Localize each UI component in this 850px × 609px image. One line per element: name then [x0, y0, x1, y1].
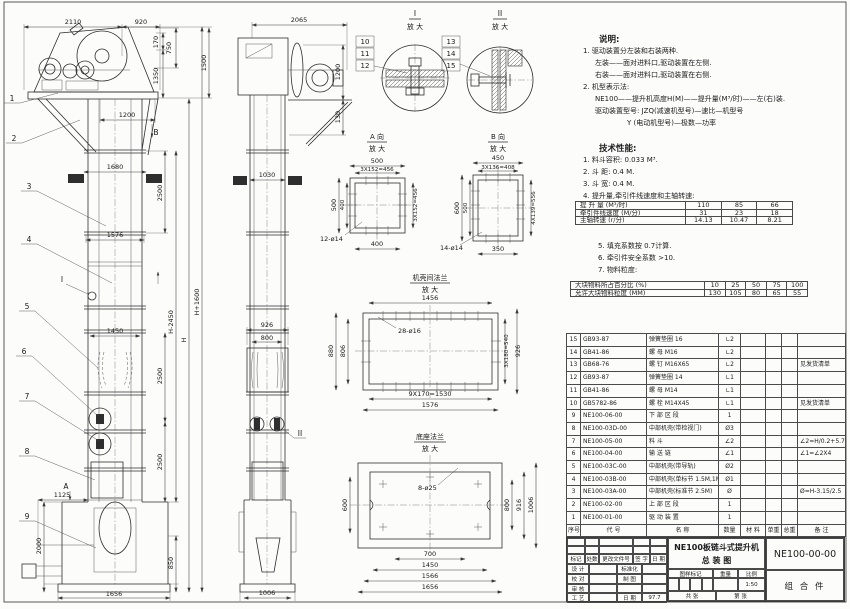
bom-qty: ∟2 — [719, 334, 741, 347]
dim-fb-1566: 1566 — [422, 572, 439, 580]
bom-code: GB93-87 — [581, 334, 647, 347]
tech-block-2: 5. 填充系数按 0.7计算. 6. 牵引件安全系数 >10. 7. 物料粒度: — [598, 243, 848, 279]
speed-value: 10.47 — [721, 217, 757, 225]
bom-no: 11 — [567, 384, 581, 397]
bom-material — [741, 346, 766, 359]
dim-1125: 1125 — [54, 491, 71, 499]
drawing-sheet: 2110 920 170 750 1350 1500 1200 B 1680 2… — [0, 0, 850, 609]
balloon-2: 2 — [12, 134, 17, 143]
detail-i-location — [88, 292, 96, 300]
bom-row: 13 GB68-76 螺 钉 M16X65 ∟2 见发货清单 — [567, 359, 846, 372]
bom-code: NE100-02-00 — [581, 499, 647, 512]
titleblock-date-label: 日 期 — [617, 593, 642, 603]
dim-1350: 1350 — [152, 68, 160, 85]
bom-header-code: 代 号 — [581, 524, 647, 537]
speed-value: 66 — [757, 202, 793, 210]
bom-no: 8 — [567, 422, 581, 435]
bom-row: 14 GB41-86 螺 母 M16 ∟2 — [567, 346, 846, 359]
bom-header-total-weight: 总重 — [782, 524, 798, 537]
bom-total-weight — [782, 435, 798, 448]
bom-code: GB68-76 — [581, 359, 647, 372]
bom-qty: Ø3 — [719, 422, 741, 435]
bom-unit-weight — [766, 422, 782, 435]
bom-material — [741, 384, 766, 397]
bom-remark — [798, 334, 846, 347]
speed-row-label: 牵引件线速度 (M/分) — [576, 209, 686, 217]
bom-header-row: 序号 代 号 名 称 数量 材 料 单重 总重 备 注 — [567, 524, 846, 537]
bom-code: NE100-03B-00 — [581, 473, 647, 486]
bom-total-weight — [782, 448, 798, 461]
bom-qty: ∠2 — [719, 435, 741, 448]
dim-1500: 1500 — [200, 55, 208, 72]
bom-qty: ∟1 — [719, 384, 741, 397]
bom-total-weight — [782, 511, 798, 524]
bom-name: 驱 动 装 置 — [647, 511, 719, 524]
bom-material — [741, 461, 766, 474]
dim-b-450-top: 450 — [492, 154, 504, 162]
bom-no: 15 — [567, 334, 581, 347]
bom-row: 9 NE100-06-00 下 部 区 段 1 — [567, 410, 846, 423]
bom-code: GB93-87 — [581, 372, 647, 385]
dim-fb-916: 916 — [515, 499, 523, 511]
balloon-3: 3 — [27, 182, 32, 191]
bom-code: NE100-05-00 — [581, 435, 647, 448]
dim-a-500-left: 500 — [330, 199, 338, 211]
dim-h-2450: H-2450 — [167, 310, 175, 334]
bom-material — [741, 372, 766, 385]
balloon-11: 11 — [361, 50, 370, 58]
count-label: 处数 — [585, 554, 599, 564]
dim-2000: 2000 — [35, 538, 43, 555]
bom-material — [741, 359, 766, 372]
bom-remark: 见发货清单 — [798, 359, 846, 372]
view-a-mag-label: 放 大 — [369, 144, 385, 153]
bom-row: 4 NE100-03B-00 中部机壳(单标节 1.5M,1M) Ø1 — [567, 473, 846, 486]
scale-value: 1:50 — [738, 578, 765, 591]
bom-qty: ∟1 — [719, 397, 741, 410]
drawing-title-line2: 总 装 图 — [702, 555, 732, 566]
title-block-right: NE100-00-00 组 合 件 — [765, 538, 844, 601]
drive-motor — [39, 58, 61, 80]
bom-total-weight — [782, 384, 798, 397]
detail-i-marker: I — [61, 275, 63, 284]
bom-material — [741, 499, 766, 512]
bom-unit-weight — [766, 384, 782, 397]
view-a-marker: A — [63, 482, 69, 491]
dim-a-holes: 12-ø14 — [320, 235, 343, 243]
bom-qty: Ø — [719, 486, 741, 499]
bom-header-unit-weight: 单重 — [766, 524, 782, 537]
bom-name: 螺 母 M14 — [647, 384, 719, 397]
balloon-10: 10 — [361, 38, 370, 46]
dim-fm-926: 926 — [514, 345, 522, 357]
balloon-8: 8 — [25, 447, 30, 456]
bom-remark — [798, 346, 846, 359]
bom-remark — [798, 473, 846, 486]
design-label: 设 计 — [567, 564, 589, 574]
bom-no: 10 — [567, 397, 581, 410]
base-flange-mag-label: 放 大 — [422, 444, 438, 453]
dim-fb-1006: 1006 — [527, 497, 535, 514]
bom-name: 上 部 区 段 — [647, 499, 719, 512]
bom-row: 11 GB41-86 螺 母 M14 ∟1 — [567, 384, 846, 397]
bom-total-weight — [782, 486, 798, 499]
speed-value: 110 — [686, 202, 722, 210]
bom-material — [741, 486, 766, 499]
bom-rows: 15 GB93-87 弹簧垫圈 16 ∟2 14 GB41-86 螺 母 M16… — [567, 334, 846, 525]
bom-name: 中部机壳(带检视门) — [647, 422, 719, 435]
bom-no: 6 — [567, 448, 581, 461]
bom-unit-weight — [766, 499, 782, 512]
balloon-9: 9 — [25, 512, 30, 521]
bom-material — [741, 410, 766, 423]
dim-1200-side: 1200 — [334, 64, 342, 81]
bom-qty: 1 — [719, 499, 741, 512]
dim-800: 800 — [261, 334, 273, 342]
speed-value: 18 — [757, 209, 793, 217]
bom-unit-weight — [766, 435, 782, 448]
bom-code: NE100-04-00 — [581, 448, 647, 461]
dim-b-350-bottom: 350 — [492, 245, 504, 253]
bom-code: NE100-03C-00 — [581, 461, 647, 474]
table-row: 主轴转速 (r/分) 14.13 10.47 8.21 — [576, 217, 793, 225]
bucket-outline — [98, 352, 132, 388]
bom-row: 10 GB5782-86 螺 栓 M14X45 ∟1 见发货清单 — [567, 397, 846, 410]
table-row: 大块物料所占百分比 (%) 10 25 50 75 100 — [571, 282, 808, 290]
bom-material — [741, 473, 766, 486]
bom-material — [741, 397, 766, 410]
dim-fm-holes: 28-ø16 — [398, 327, 421, 335]
dim-fb-1656: 1656 — [422, 583, 439, 591]
speed-row-label: 提 升 量 (M³/时) — [576, 202, 686, 210]
balloon-1: 1 — [10, 94, 15, 103]
bom-qty: Ø1 — [719, 473, 741, 486]
tech-item: 2. 斗 距: 0.4 M. — [583, 169, 845, 176]
bom-unit-weight — [766, 334, 782, 347]
bom-material — [741, 334, 766, 347]
head-housing — [34, 27, 154, 92]
bom-row: 15 GB93-87 弹簧垫圈 16 ∟2 — [567, 334, 846, 347]
dim-a-500-top: 500 — [371, 157, 383, 165]
note-line: 驱动装置型号: JZQ(减速机型号)—速比—机型号 — [595, 108, 845, 115]
detail-i-mag-label: 放 大 — [407, 22, 423, 31]
bom-qty: ∟2 — [719, 359, 741, 372]
dim-fb-1450: 1450 — [422, 561, 439, 569]
speed-value: 31 — [686, 209, 722, 217]
bom-header-qty: 数量 — [719, 524, 741, 537]
dim-fm-806: 806 — [339, 345, 347, 357]
dim-fm-1576: 1576 — [422, 401, 439, 409]
tech-item: 5. 填充系数按 0.7计算. — [598, 243, 848, 250]
bom-no: 7 — [567, 435, 581, 448]
note-line: 2. 机型表示法: — [583, 84, 845, 91]
dim-fm-540: 3X180=540 — [504, 334, 510, 368]
view-a-flange: A 向 放 大 500 3X152=456 500 400 3X152=456 … — [320, 132, 419, 249]
assembly-label: 组 合 件 — [766, 570, 844, 601]
bom-no: 3 — [567, 486, 581, 499]
table-row: 牵引件线速度 (M/分) 31 23 18 — [576, 209, 793, 217]
dim-1450: 1450 — [107, 327, 124, 335]
bom-material — [741, 511, 766, 524]
mid-flange-mag-label: 放 大 — [422, 285, 438, 294]
dim-fm-880: 880 — [327, 345, 335, 357]
bom-no: 2 — [567, 499, 581, 512]
detail-i-title: I — [414, 9, 416, 18]
bom-name: 螺 钉 M16X65 — [647, 359, 719, 372]
drawing-title-line1: NE100板链斗式提升机 — [674, 542, 759, 553]
size-value: 105 — [725, 289, 746, 297]
balloon-14: 14 — [447, 50, 456, 58]
size-value: 130 — [705, 289, 726, 297]
bom-no: 9 — [567, 410, 581, 423]
dim-a-400-left: 400 — [340, 199, 346, 210]
bom-code: NE100-03D-00 — [581, 422, 647, 435]
bom-name: 中部机壳(标准节 2.5M) — [647, 486, 719, 499]
dim-2500c: 2500 — [156, 454, 164, 471]
balloon-7: 7 — [25, 392, 30, 401]
bom-remark — [798, 384, 846, 397]
bom-qty: ∟2 — [719, 346, 741, 359]
view-a-title: A 向 — [370, 132, 384, 141]
side-head-housing — [238, 38, 288, 95]
speed-value: 23 — [721, 209, 757, 217]
dim-fm-1530: 9X170=1530 — [409, 390, 452, 398]
size-value: 50 — [746, 282, 767, 290]
dim-fb-holes: 8-ø25 — [418, 484, 437, 492]
scale-label: 比例 — [738, 569, 765, 578]
bom-name: 下 部 区 段 — [647, 410, 719, 423]
dim-fb-700: 700 — [424, 550, 436, 558]
detail-i-view: I 放 大 10 11 12 — [356, 9, 450, 112]
drafting-label: 制 图 — [617, 574, 642, 584]
size-value: 10 — [705, 282, 726, 290]
standardization-label: 标准化 — [617, 564, 642, 574]
balloon-13: 13 — [447, 38, 456, 46]
dim-fb-800: 800 — [503, 499, 511, 511]
bom-unit-weight — [766, 473, 782, 486]
wall-bracket-left — [68, 174, 84, 183]
speed-value: 85 — [721, 202, 757, 210]
head-base-plate — [28, 92, 158, 99]
bom-qty: 1 — [719, 511, 741, 524]
bom-remark — [798, 499, 846, 512]
bom-name: 螺 母 M16 — [647, 346, 719, 359]
bom-table: 15 GB93-87 弹簧垫圈 16 ∟2 14 GB41-86 螺 母 M16… — [566, 333, 846, 537]
sign-label: 签 字 — [633, 554, 650, 564]
inspection-door — [91, 462, 123, 498]
bom-unit-weight — [766, 448, 782, 461]
bom-code: NE100-06-00 — [581, 410, 647, 423]
detail-ii-title: II — [498, 9, 502, 18]
balloon-15: 15 — [447, 62, 456, 70]
tech-item: 1. 料斗容积: 0.033 M³. — [583, 157, 845, 164]
dim-2500a: 2500 — [156, 185, 164, 202]
balloon-4: 4 — [27, 235, 32, 244]
dim-1030: 1030 — [259, 171, 276, 179]
bom-row: 8 NE100-03D-00 中部机壳(带检视门) Ø3 — [567, 422, 846, 435]
mark-label: 标记 — [567, 554, 585, 564]
bom-unit-weight — [766, 397, 782, 410]
bom-total-weight — [782, 346, 798, 359]
dim-1200: 1200 — [119, 111, 136, 119]
detail-ii-view: II 放 大 13 14 15 — [442, 9, 533, 114]
view-b-marker: B — [153, 128, 158, 137]
detail-ii-marker: II — [298, 429, 302, 438]
dim-b-pitch-top: 3X136=408 — [481, 165, 515, 171]
table-row: 允许大块物料粒度 (MM) 130 105 80 65 55 — [571, 289, 808, 297]
size-value: 25 — [725, 282, 746, 290]
bom-total-weight — [782, 499, 798, 512]
title-block-middle: NE100板链斗式提升机 总 装 图 图样标记 重量 比例 1:50 共 张 第… — [667, 538, 765, 601]
bom-material — [741, 448, 766, 461]
dim-fm-1456: 1456 — [422, 294, 439, 302]
bom-row: 6 NE100-04-00 输 送 链 ∠1 ∠1=∠2X4 — [567, 448, 846, 461]
balloon-5: 5 — [25, 302, 30, 311]
bom-unit-weight — [766, 359, 782, 372]
bom-remark — [798, 511, 846, 524]
size-value: 55 — [787, 289, 808, 297]
bom-remark: ∠1=∠2X4 — [798, 448, 846, 461]
bom-remark: ∠2=H/0.2+5.75 — [798, 435, 846, 448]
dim-170: 170 — [152, 36, 160, 48]
dim-850: 850 — [167, 557, 175, 569]
change-file-label: 更改文件号 — [599, 554, 633, 564]
bom-unit-weight — [766, 410, 782, 423]
bom-name: 中部机壳(单标节 1.5M,1M) — [647, 473, 719, 486]
note-line: 右装——面对进料口,驱动装置在右侧. — [595, 72, 845, 79]
view-b-title: B 向 — [491, 132, 505, 141]
bom-no: 1 — [567, 511, 581, 524]
title-block-left: 标记 处数 更改文件号 签 字 日 期 设 计 标准化 校 对 制 图 审 核 … — [567, 538, 667, 601]
bom-qty: 1 — [719, 410, 741, 423]
weight-label: 重量 — [713, 569, 738, 578]
mid-flange-view: 机壳间法兰 放 大 1456 28-ø16 880 806 3X180=540 … — [327, 273, 522, 410]
tech-heading: 技术性能: — [599, 145, 845, 154]
bom-code: GB5782-86 — [581, 397, 647, 410]
note-line: 左装——面对进料口,驱动装置在左侧. — [595, 60, 845, 67]
bom-remark — [798, 422, 846, 435]
dim-b-pitch-right: 4X139=556 — [531, 191, 537, 225]
notes-block: 说明: 1. 驱动装置分左装和右装两种. 左装——面对进料口,驱动装置在左侧. … — [583, 36, 845, 132]
lump-size-table: 大块物料所占百分比 (%) 10 25 50 75 100 允许大块物料粒度 (… — [570, 281, 808, 297]
size-value: 65 — [766, 289, 787, 297]
dim-fb-600: 600 — [341, 499, 349, 511]
dim-130: 130 — [334, 111, 342, 123]
bom-total-weight — [782, 372, 798, 385]
bom-name: 中部机壳(带导轨) — [647, 461, 719, 474]
base-flange-title: 底座法兰 — [416, 432, 444, 441]
titleblock-date-value: 97.7 — [642, 593, 667, 603]
bom-name: 料 斗 — [647, 435, 719, 448]
bom-row: 5 NE100-03C-00 中部机壳(带导轨) Ø2 — [567, 461, 846, 474]
stamp-label: 图样标记 — [668, 569, 713, 578]
dim-a-400-bottom: 400 — [371, 240, 383, 248]
front-elevation-view: 2110 920 170 750 1350 1500 1200 B 1680 2… — [4, 18, 212, 601]
dim-b-holes: 14-ø14 — [440, 244, 463, 252]
bom-remark: 见发货清单 — [798, 397, 846, 410]
dim-2065: 2065 — [291, 16, 308, 24]
bom-no: 5 — [567, 461, 581, 474]
bom-no: 12 — [567, 372, 581, 385]
dim-920: 920 — [135, 18, 147, 26]
bom-remark — [798, 410, 846, 423]
bom-code: GB41-86 — [581, 384, 647, 397]
sheets-total-label: 共 张 — [668, 591, 716, 601]
bom-total-weight — [782, 397, 798, 410]
bom-no: 14 — [567, 346, 581, 359]
balloon-12: 12 — [361, 62, 370, 70]
discharge-funnel — [256, 538, 280, 572]
sheet-number-label: 第 张 — [716, 591, 765, 601]
bom-header-remark: 备 注 — [798, 524, 846, 537]
bom-name: 弹簧垫圈 16 — [647, 334, 719, 347]
speed-value: 14.13 — [686, 217, 722, 225]
dim-a-pitch-top: 3X152=456 — [360, 167, 394, 173]
mid-flange-title: 机壳间法兰 — [413, 273, 448, 282]
dim-926-side: 926 — [261, 321, 273, 329]
bom-code: NE100-03A-00 — [581, 486, 647, 499]
notes-heading: 说明: — [599, 36, 845, 45]
balloon-6: 6 — [22, 347, 27, 356]
note-line: 1. 驱动装置分左装和右装两种. — [583, 48, 845, 55]
tech-item: 7. 物料粒度: — [598, 267, 848, 274]
bom-unit-weight — [766, 372, 782, 385]
bom-row: 12 GB93-87 弹簧垫圈 14 ∟1 — [567, 372, 846, 385]
dim-1576: 1576 — [107, 231, 124, 239]
bom-row: 7 NE100-05-00 料 斗 ∠2 ∠2=H/0.2+5.75 — [567, 435, 846, 448]
dim-h-plus-1600: H+1600 — [193, 289, 201, 316]
speed-value: 8.21 — [757, 217, 793, 225]
dim-h: H — [180, 337, 188, 342]
dim-1006: 1006 — [259, 589, 276, 597]
bom-unit-weight — [766, 511, 782, 524]
size-value: 80 — [746, 289, 767, 297]
bom-material — [741, 435, 766, 448]
bom-header-no: 序号 — [567, 524, 581, 537]
base-flange-view: 底座法兰 放 大 8-ø25 600 800 916 1006 700 1450… — [341, 432, 536, 592]
wall-bracket-right — [146, 174, 162, 183]
note-line: NE100——提升机高度H(M)——提升量(M³/时)——左(右)装. — [595, 96, 845, 103]
bom-remark — [798, 461, 846, 474]
review-label: 审 核 — [567, 584, 589, 593]
bom-name: 弹簧垫圈 14 — [647, 372, 719, 385]
head-support-legs — [38, 99, 158, 155]
size-row-label: 允许大块物料粒度 (MM) — [571, 289, 705, 297]
title-block: 标记 处数 更改文件号 签 字 日 期 设 计 标准化 校 对 制 图 审 核 … — [566, 537, 845, 602]
part-balloons: 1 2 3 4 5 6 7 8 9 — [4, 93, 112, 548]
bom-name: 螺 栓 M14X45 — [647, 397, 719, 410]
bom-total-weight — [782, 334, 798, 347]
size-value: 75 — [766, 282, 787, 290]
dim-b-600-left: 600 — [453, 202, 461, 214]
dim-2500b: 2500 — [156, 368, 164, 385]
bom-name: 输 送 链 — [647, 448, 719, 461]
note-line: Y (电动机型号)—极数—功率 — [627, 120, 845, 127]
dim-1680: 1680 — [107, 163, 124, 171]
bom-material — [741, 422, 766, 435]
speed-row-label: 主轴转速 (r/分) — [576, 217, 686, 225]
tech-item: 6. 牵引件安全系数 >10. — [598, 255, 848, 262]
dim-a-pitch-right: 3X152=456 — [413, 188, 419, 222]
bom-row: 3 NE100-03A-00 中部机壳(标准节 2.5M) Ø Ø=H-3.15… — [567, 486, 846, 499]
bom-header-name: 名 称 — [647, 524, 719, 537]
bom-row: 1 NE100-01-00 驱 动 装 置 1 — [567, 511, 846, 524]
drawing-number: NE100-00-00 — [766, 538, 844, 570]
side-platform-brace — [288, 100, 352, 146]
date-label: 日 期 — [650, 554, 667, 564]
size-row-label: 大块物料所占百分比 (%) — [571, 282, 705, 290]
detail-ii-mag-label: 放 大 — [492, 22, 508, 31]
